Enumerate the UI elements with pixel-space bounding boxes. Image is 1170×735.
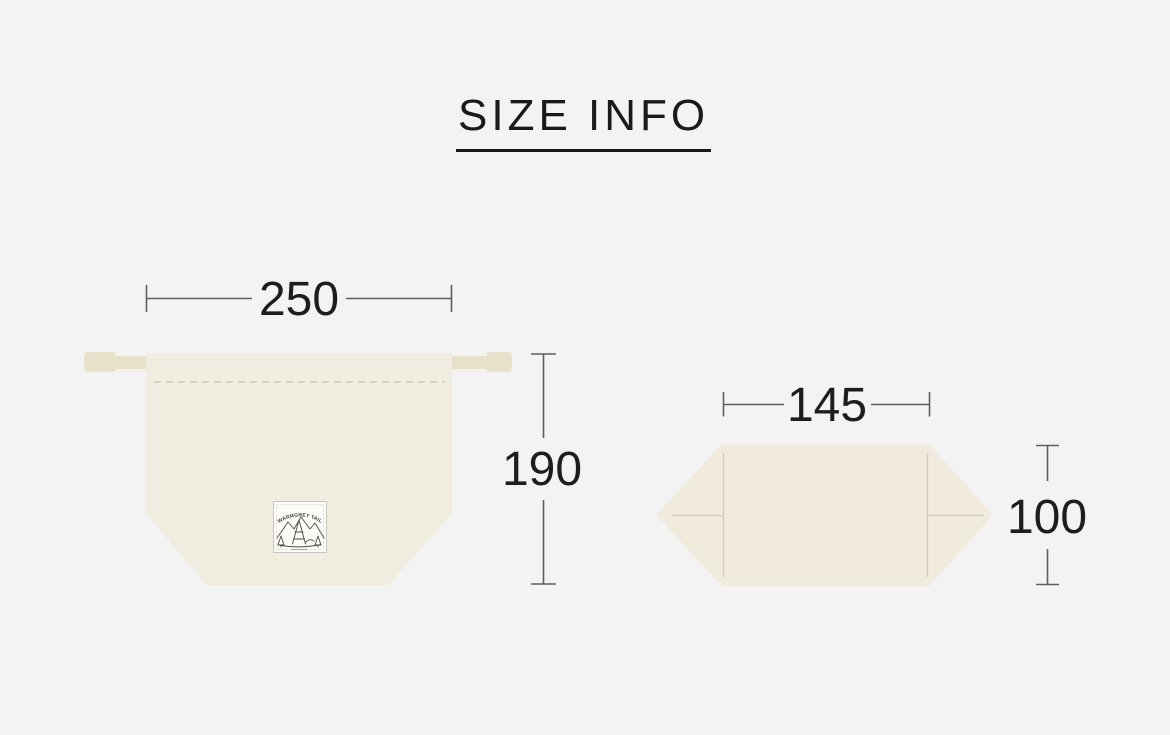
bag-bottom-figure xyxy=(658,445,991,585)
drawstring-knob-left xyxy=(84,352,116,372)
diagram-canvas: WARMGREY TAIL xyxy=(0,0,1170,735)
dim-bottom-height-value: 100 xyxy=(1007,491,1087,544)
dim-bottom-width-value: 145 xyxy=(787,379,867,432)
drawstring-cord-left xyxy=(112,356,148,369)
drawstring-cord-right xyxy=(450,356,489,369)
drawstring-knob-right xyxy=(486,352,512,372)
brand-label: WARMGREY TAIL xyxy=(273,501,327,553)
dim-front-height-value: 190 xyxy=(502,443,582,496)
dim-front-width-value: 250 xyxy=(259,273,339,326)
bag-front-figure: WARMGREY TAIL xyxy=(84,352,512,584)
size-info-diagram: SIZE INFO xyxy=(0,0,1170,735)
